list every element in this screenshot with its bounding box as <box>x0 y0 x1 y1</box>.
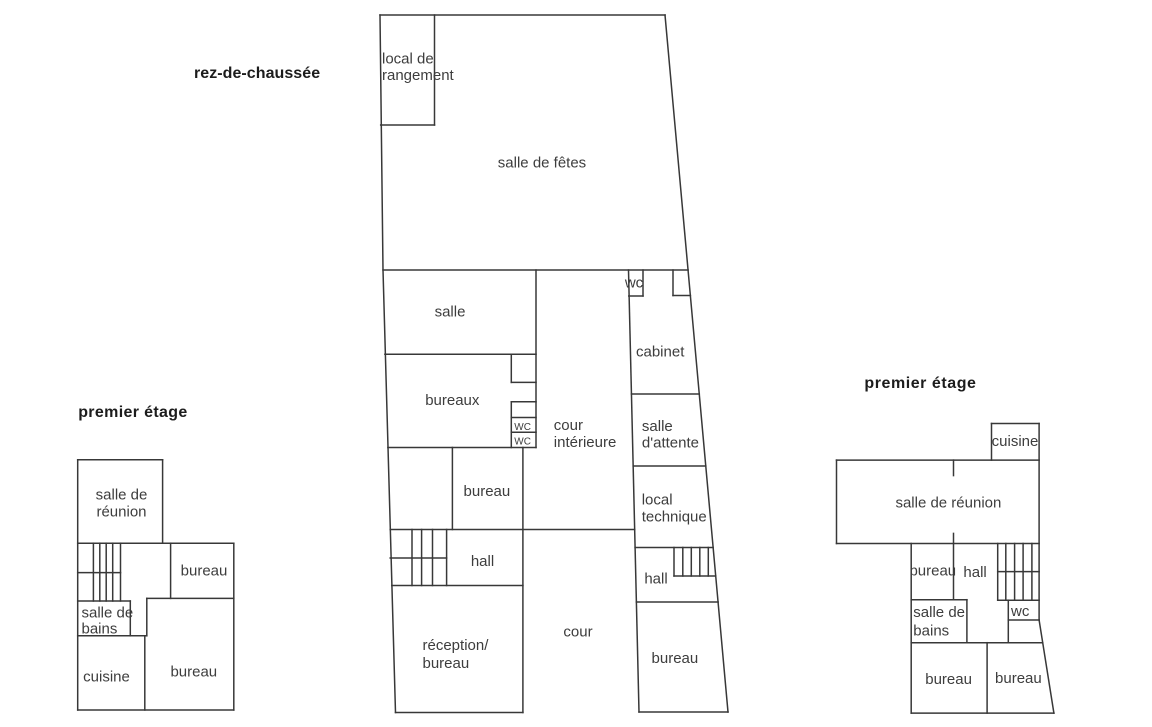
svg-text:bureau: bureau <box>464 483 511 500</box>
svg-text:bureaux: bureaux <box>425 392 480 409</box>
svg-text:premier étage: premier étage <box>78 404 188 421</box>
svg-text:WC: WC <box>514 436 531 447</box>
svg-text:technique: technique <box>642 509 707 526</box>
svg-text:cour: cour <box>563 623 592 640</box>
svg-text:bureau: bureau <box>995 670 1042 687</box>
svg-text:wc: wc <box>624 275 644 292</box>
svg-text:bureau: bureau <box>909 562 956 579</box>
svg-text:réception/: réception/ <box>423 637 490 654</box>
svg-text:wc: wc <box>1010 603 1030 620</box>
svg-text:premier étage: premier étage <box>864 375 976 392</box>
svg-text:cuisine: cuisine <box>992 433 1039 450</box>
svg-text:rangement: rangement <box>382 67 455 84</box>
svg-text:bureau: bureau <box>652 650 699 667</box>
svg-text:bureau: bureau <box>423 655 470 672</box>
svg-text:réunion: réunion <box>96 503 146 520</box>
svg-text:bureau: bureau <box>925 671 972 688</box>
svg-text:local: local <box>642 491 673 508</box>
svg-text:salle de: salle de <box>96 486 148 503</box>
svg-text:salle de réunion: salle de réunion <box>895 495 1001 512</box>
svg-text:hall: hall <box>963 564 986 581</box>
svg-text:salle: salle <box>435 303 466 320</box>
svg-text:cour: cour <box>554 417 583 434</box>
svg-text:bains: bains <box>82 621 118 638</box>
svg-text:local de: local de <box>382 50 434 67</box>
svg-text:cuisine: cuisine <box>83 668 130 685</box>
svg-text:hall: hall <box>644 571 667 588</box>
svg-text:rez-de-chaussée: rez-de-chaussée <box>194 65 320 82</box>
svg-text:cabinet: cabinet <box>636 344 685 361</box>
svg-text:WC: WC <box>514 422 531 433</box>
svg-text:salle: salle <box>642 418 673 435</box>
svg-text:salle de: salle de <box>913 604 965 621</box>
svg-text:salle de fêtes: salle de fêtes <box>498 155 586 172</box>
svg-text:bureau: bureau <box>181 562 228 579</box>
svg-text:salle de: salle de <box>82 604 134 621</box>
svg-text:d'attente: d'attente <box>642 435 699 452</box>
svg-text:bureau: bureau <box>170 663 217 680</box>
svg-text:intérieure: intérieure <box>554 434 617 451</box>
svg-text:hall: hall <box>471 553 494 570</box>
svg-text:bains: bains <box>913 622 949 639</box>
